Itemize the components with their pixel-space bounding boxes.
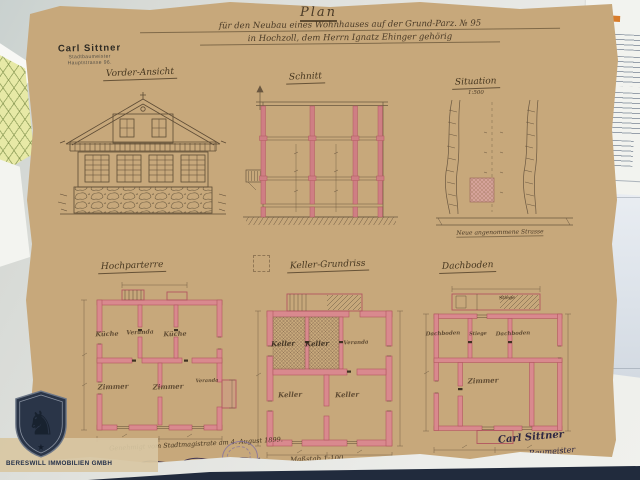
scale-note: Maßstab 1:100 — [290, 454, 344, 465]
caption-attic: Dachboden — [439, 260, 497, 274]
room-label: Dachboden — [426, 330, 461, 337]
room-label: Zimmer — [97, 381, 128, 391]
room-label: Küche — [163, 330, 186, 339]
company-name: BERESWILL IMMOBILIEN GMBH — [6, 460, 112, 467]
section-drawing — [238, 82, 403, 227]
room-label: Stiege — [499, 296, 515, 302]
room-label: Keller — [271, 339, 295, 349]
company-shield-logo: ♞ ★ — [12, 388, 70, 460]
room-label: Veranda — [126, 329, 154, 337]
room-label: Zimmer — [467, 375, 498, 385]
white-sheet — [0, 158, 30, 268]
caption-ground-floor: Hochparterre — [98, 260, 167, 274]
situation-drawing — [432, 92, 577, 237]
plan-subtitle-line2: in Hochzoll, dem Herrn Ignatz Ehinger ge… — [200, 31, 500, 45]
cellar-key-square — [253, 255, 270, 272]
cellar-plan — [252, 286, 407, 461]
room-label: Veranda — [195, 378, 218, 385]
caption-elevation: Vorder-Ansicht — [103, 67, 177, 82]
caption-situation: Situation — [452, 76, 500, 90]
horse-icon: ♞ — [26, 405, 55, 442]
architect-stamp-address: Hauptstrasse 96. — [58, 59, 121, 66]
room-label: Veranda — [343, 340, 368, 347]
photo-of-building-plan: Plan für den Neubau eines Wohnhauses auf… — [0, 0, 640, 480]
star-icon: ★ — [37, 442, 45, 452]
caption-cellar: Keller-Grundriss — [287, 259, 369, 274]
elevation-drawing — [58, 92, 228, 217]
room-label: Küche — [95, 330, 118, 339]
ground-floor-plan — [72, 282, 242, 447]
architect-stamp: Carl Sittner Stadtbaumeister Hauptstrass… — [58, 42, 122, 66]
official-seal-inner-ring — [225, 444, 252, 468]
room-label: Keller — [335, 390, 359, 400]
architect-stamp-name: Carl Sittner — [58, 42, 121, 54]
room-label: Zimmer — [152, 381, 183, 391]
room-label: Stiege — [469, 331, 487, 338]
plan-sheet: Plan für den Neubau eines Wohnhauses auf… — [24, 0, 620, 472]
room-label: Keller — [278, 390, 302, 400]
room-label: Dachboden — [496, 330, 531, 337]
room-label: Keller — [305, 339, 329, 349]
signature-flourish — [470, 442, 604, 470]
situation-road-label: Neue angenommene Strasse — [456, 228, 544, 238]
